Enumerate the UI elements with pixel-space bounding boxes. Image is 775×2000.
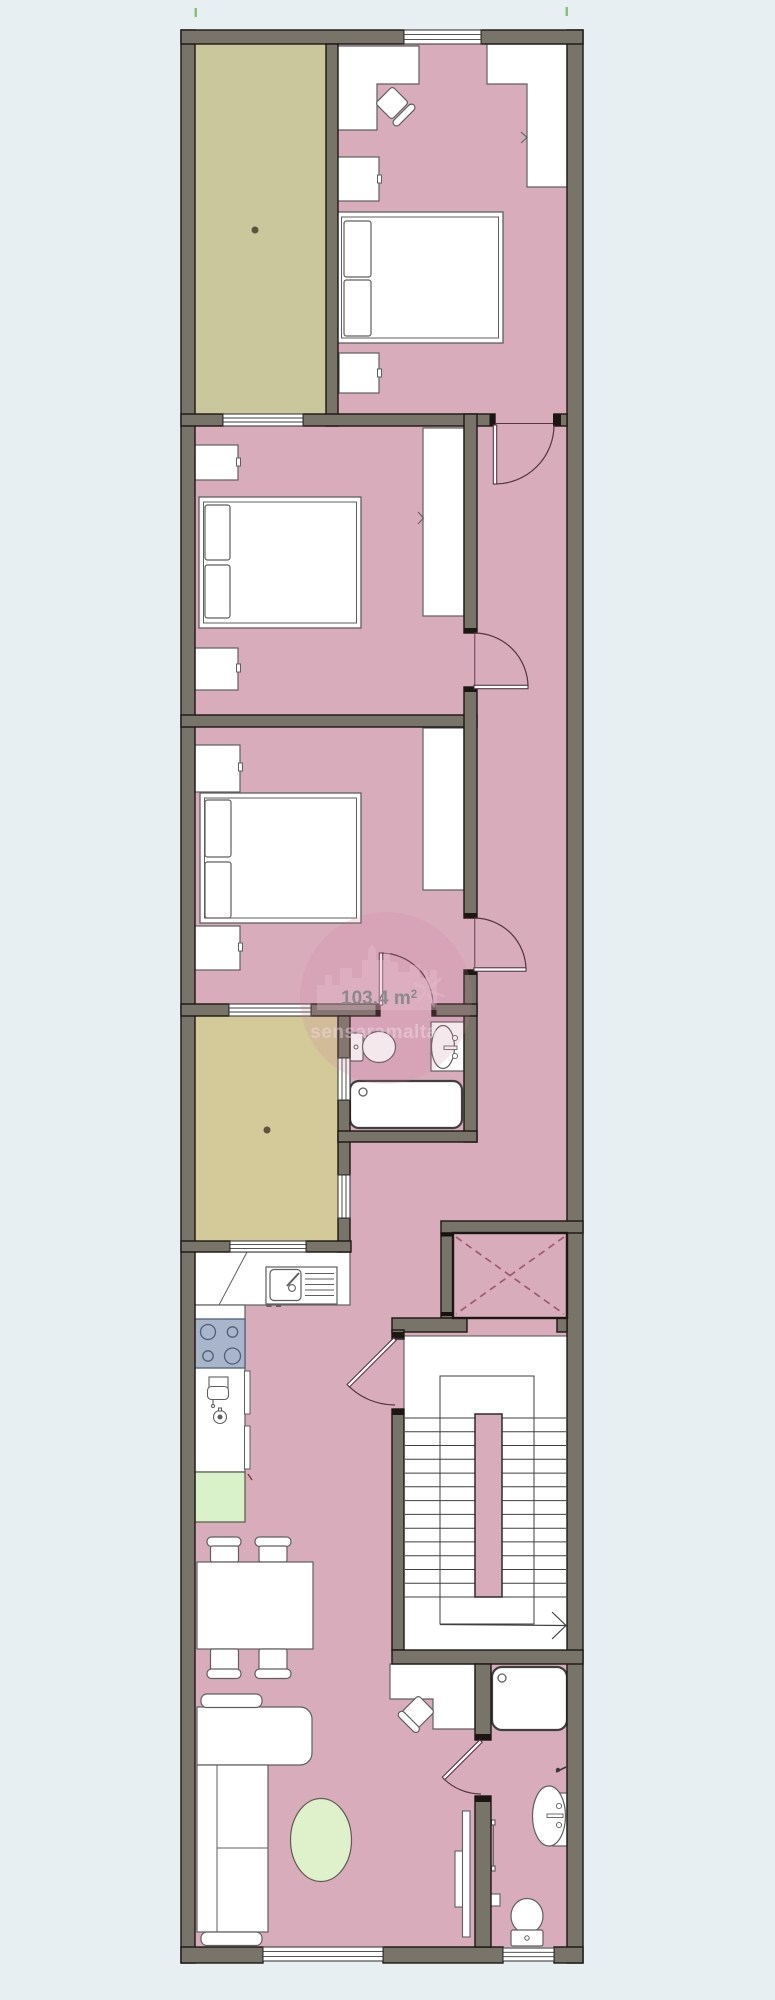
svg-text:sensaramalta: sensaramalta: [310, 1022, 437, 1043]
svg-text:103.4 m2: 103.4 m2: [341, 988, 417, 1009]
